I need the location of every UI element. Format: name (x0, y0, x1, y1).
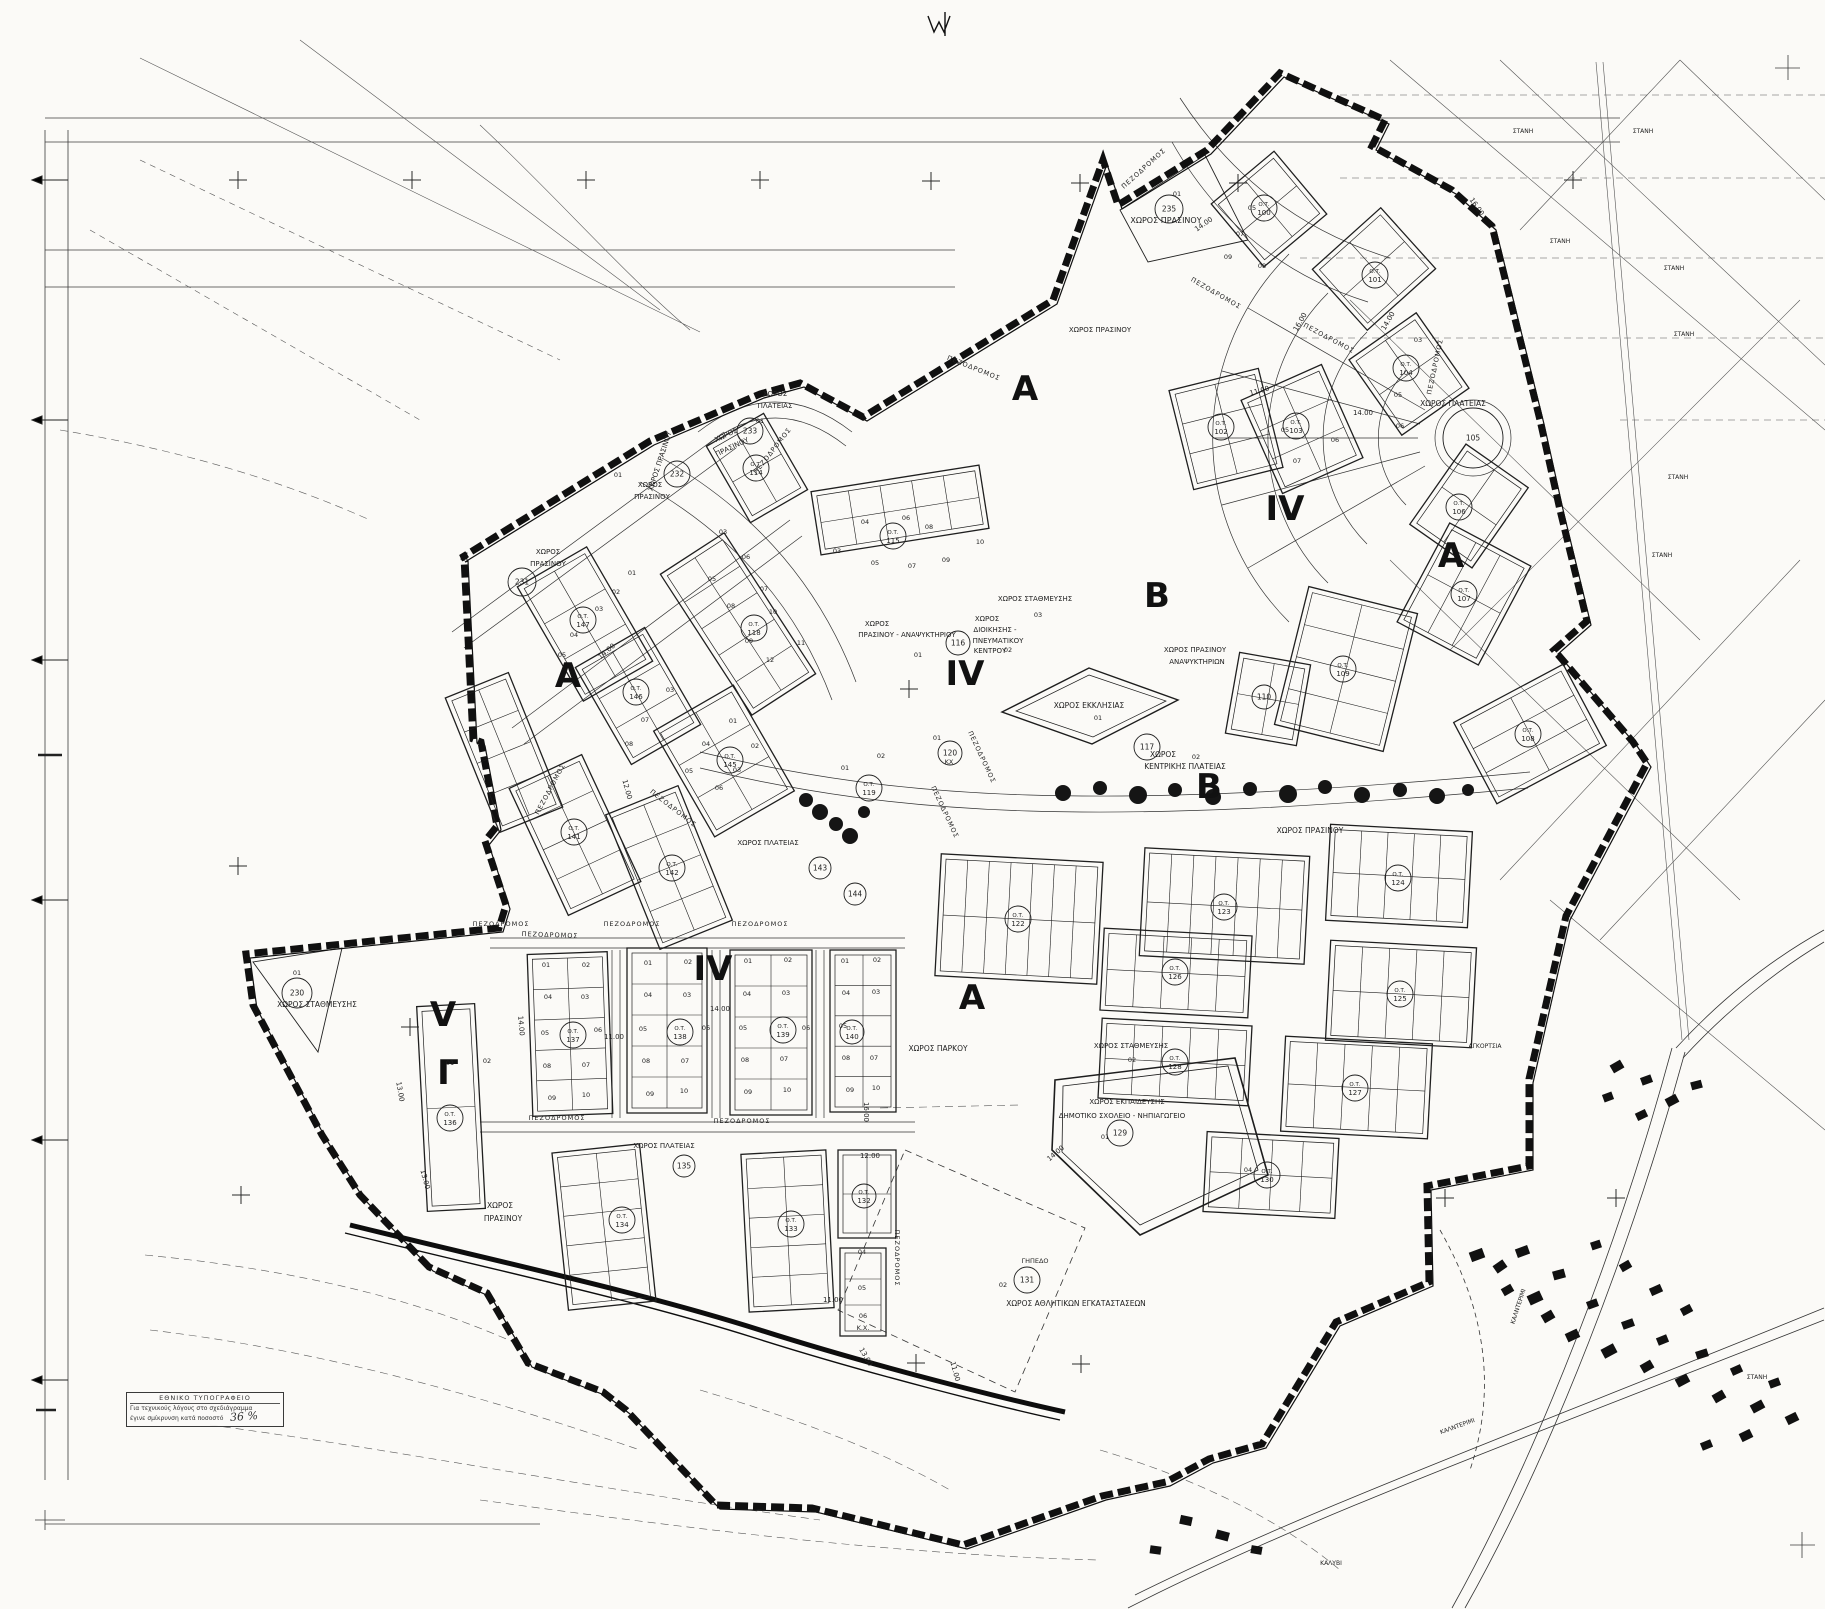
plot-number: 03 (581, 993, 589, 1001)
area-label: ΧΩΡΟΣ ΠΡΑΣΙΝΟΥ (1164, 646, 1227, 654)
plot-number: 01 (756, 417, 764, 425)
ot-prefix: Ο.Τ. (863, 782, 874, 788)
grid-cross (577, 171, 595, 189)
ot-prefix: Ο.Τ. (1369, 269, 1380, 275)
ot-number: 126 (1168, 973, 1182, 981)
area-label: ΧΩΡΟΣ ΠΡΑΣΙΝΟΥ (1277, 826, 1344, 835)
area-label: ΧΩΡΟΣ ΣΤΑΘΜΕΥΣΗΣ (1094, 1042, 1168, 1050)
area-label: ΠΡΑΣΙΝΟΥ - ΑΝΑΨΥΚΤΗΡΙΟΥ (858, 631, 956, 639)
street-label: ΠΕΖΟΔΡΟΜΟΣ (966, 730, 997, 785)
block-circle: 131 (1014, 1267, 1040, 1293)
tree-blob (812, 804, 828, 820)
zone-label: B (1144, 576, 1170, 616)
block-number: 144 (848, 890, 863, 899)
zone-label: IV (694, 949, 734, 989)
rural-label: ΣΤΑΝΗ (1513, 128, 1534, 135)
plot-number: 12 (766, 656, 774, 664)
ot-number: 119 (862, 789, 875, 797)
ot-number: 104 (1399, 369, 1413, 377)
legend-percent: 36 % (230, 1412, 258, 1422)
area-label: ΧΩΡΟΣ (975, 615, 999, 623)
area-label: ΠΡΑΣΙΝΟΥ (484, 1214, 523, 1223)
plot-number: 01 (614, 471, 622, 479)
ot-number: 133 (784, 1225, 797, 1233)
building-block (1274, 587, 1417, 752)
plot-number: 05 (839, 1022, 847, 1030)
block-number: 129 (1113, 1129, 1128, 1138)
plot-number: 04 (570, 631, 578, 639)
street-label: ΠΕΖΟΔΡΟΜΟΣ (1189, 276, 1242, 311)
ot-number: 122 (1011, 920, 1024, 928)
village-house (1730, 1364, 1743, 1376)
plot-number: 02 (1004, 646, 1012, 654)
ot-prefix: Ο.Τ. (674, 1026, 685, 1032)
ot-block-circle: Ο.Τ.109 (1330, 656, 1356, 682)
village-house (1640, 1074, 1653, 1085)
area-label: ΧΩΡΟΣ ΠΛΑΤΕΙΑΣ (737, 839, 798, 847)
ot-block-circle: Ο.Τ.115 (880, 523, 906, 549)
ot-prefix: Ο.Τ. (1522, 728, 1533, 734)
ot-number: 137 (566, 1036, 579, 1044)
village-house (1250, 1545, 1262, 1555)
rural-label: ΑΓΚΟΡΤΣΙΑ (1468, 1043, 1502, 1050)
plot-number: 08 (642, 1057, 650, 1065)
plot-number: 03 (872, 988, 880, 996)
plot-number: 03 (782, 989, 790, 997)
dimension-label: 11.00 (823, 1296, 843, 1304)
ot-number: 130 (1260, 1176, 1273, 1184)
ot-block-circle: Ο.Τ.132 (852, 1184, 876, 1208)
dimension-label: 11.00 (948, 1361, 961, 1382)
ot-number: 107 (1457, 595, 1470, 603)
ot-prefix: Ο.Τ. (1218, 901, 1229, 907)
dimension-label: 14.00 (516, 1015, 526, 1036)
plot-number: 03 (595, 605, 603, 613)
stream-band (345, 1225, 1065, 1420)
plot-number: 01 (841, 764, 849, 772)
building-block (1410, 444, 1528, 568)
village-house (1149, 1545, 1161, 1554)
area-label: ΧΩΡΟΣ ΣΤΑΘΜΕΥΣΗΣ (277, 1000, 357, 1009)
area-label: ΓΗΠΕΔΟ (1021, 1257, 1048, 1265)
village-house (1640, 1360, 1655, 1374)
building-block (1325, 940, 1476, 1048)
street-label: ΠΕΖΟΔΡΟΜΟΣ (522, 930, 579, 940)
ot-prefix: Ο.Τ. (1453, 501, 1464, 507)
plot-number: 03 (666, 686, 674, 694)
plot-number: 07 (1236, 230, 1244, 238)
tree-blob (1279, 785, 1297, 803)
block-number: 110 (1257, 693, 1272, 702)
plot-number: 11 (797, 639, 805, 647)
plot-number: 07 (760, 585, 768, 593)
village-house (1619, 1260, 1633, 1272)
grid-cross (1072, 1355, 1090, 1373)
village-house (1565, 1329, 1581, 1343)
zone-label: IV (946, 654, 986, 694)
ot-number: 128 (1168, 1063, 1181, 1071)
ot-prefix: Ο.Τ. (616, 1214, 627, 1220)
block-number: 105 (1466, 434, 1481, 443)
block-circle: 135 (673, 1155, 695, 1177)
grid-cross (229, 857, 247, 875)
ot-prefix: Ο.Τ. (785, 1218, 796, 1224)
plot-number: 06 (1396, 422, 1404, 430)
ot-prefix: Ο.Τ. (1337, 663, 1348, 669)
dimension-label: 12.00 (620, 779, 633, 800)
block-number: 232 (670, 470, 685, 479)
area-label: ΧΩΡΟΣ (763, 390, 787, 398)
street-label: ΠΕΖΟΔΡΟΜΟΣ (732, 920, 789, 928)
tree-blob (1354, 787, 1370, 803)
block-number: 120 (943, 749, 958, 758)
village-house (1501, 1284, 1515, 1296)
dimension-label: 13.00 (394, 1081, 405, 1102)
street-label: ΠΕΖΟΔΡΟΜΟΣ (473, 920, 530, 928)
plot-number: 06 (1331, 436, 1339, 444)
dimension-label: 11.00 (1249, 385, 1270, 398)
plot-number: 03 (719, 528, 727, 536)
plot-number: 08 (741, 1056, 749, 1064)
ot-prefix: Ο.Τ. (1394, 988, 1405, 994)
zone-label: A (1012, 369, 1039, 409)
block-number: 233 (743, 427, 758, 436)
block-number: 231 (515, 578, 530, 587)
tree-blob (1462, 784, 1474, 796)
plot-number: 04 (858, 1248, 866, 1256)
ot-number: 106 (1452, 508, 1466, 516)
ot-prefix: Ο.Τ. (1290, 420, 1301, 426)
ot-prefix: Ο.Τ. (1258, 202, 1269, 208)
rural-label: ΣΤΑΝΗ (1652, 552, 1673, 559)
plot-number: 10 (783, 1086, 791, 1094)
village-house (1590, 1240, 1602, 1251)
zone-label: A (959, 978, 986, 1018)
village-house (1768, 1377, 1781, 1388)
area-label: ΧΩΡΟΣ (865, 620, 889, 628)
ot-prefix: Ο.Τ. (1012, 913, 1023, 919)
building-block (445, 673, 562, 833)
plot-number: 01 (446, 1059, 454, 1067)
plot-number: 08 (543, 1062, 551, 1070)
ot-block-circle: Ο.Τ.134 (609, 1207, 635, 1233)
ot-prefix: Ο.Τ. (568, 826, 579, 832)
plot-number: 04 (743, 990, 751, 998)
plot-number: 01 (1173, 190, 1181, 198)
plot-number: 02 (1192, 753, 1200, 761)
plot-number: 05 (685, 767, 693, 775)
ot-prefix: Ο.Τ. (1400, 362, 1411, 368)
street-label: ΠΕΖΟΔΡΟΜΟΣ (752, 426, 793, 476)
street-label: ΠΕΖΟΔΡΟΜΟΣ (1302, 321, 1356, 355)
plot-number: 03 (733, 766, 741, 774)
plot-number: 04 (1244, 1166, 1252, 1174)
plot-number: 06 (902, 514, 910, 522)
plot-number: 03 (833, 547, 841, 555)
village-house (1665, 1094, 1680, 1108)
reduction-note-box: ΕΘΝΙΚΟ ΤΥΠΟΓΡΑΦΕΙΟ Για τεχνικούς λόγους … (126, 1392, 284, 1427)
tree-blob (799, 793, 813, 807)
ot-prefix: Ο.Τ. (777, 1024, 788, 1030)
building-block (811, 465, 989, 555)
plot-number: ΚΧ (945, 758, 954, 766)
ot-prefix: Ο.Τ. (666, 862, 677, 868)
village-house (1621, 1318, 1635, 1330)
ot-number: 123 (1217, 908, 1230, 916)
plot-number: 04 (702, 740, 710, 748)
rural-label: ΣΤΑΝΗ (1668, 474, 1689, 481)
village-house (1656, 1334, 1669, 1346)
street-label: ΠΕΖΟΔΡΟΜΟΣ (893, 1230, 901, 1287)
dimension-label: 13.00 (857, 1346, 874, 1367)
dimension-label: 12.00 (860, 1152, 880, 1160)
village-house (1493, 1259, 1508, 1273)
village-house (1602, 1092, 1614, 1103)
plot-number: 07 (870, 1054, 878, 1062)
plot-number: 09 (646, 1090, 654, 1098)
plot-number: 06 (802, 1024, 810, 1032)
plot-number: 07 (582, 1061, 590, 1069)
area-label: ΠΡΑΣΙΝΟΥ (634, 493, 671, 501)
plot-number: 09 (548, 1094, 556, 1102)
ot-block-circle: Ο.Τ.136 (437, 1105, 463, 1131)
plot-number: 02 (784, 956, 792, 964)
street-label: ΠΕΖΟΔΡΟΜΟΣ (1425, 338, 1445, 395)
ot-block-circle: Ο.Τ.142 (659, 855, 685, 881)
building-block (840, 1248, 886, 1336)
ot-prefix: Ο.Τ. (1215, 421, 1226, 427)
ot-prefix: Ο.Τ. (1169, 966, 1180, 972)
area-label: ΚΕΝΤΡΙΚΗΣ ΠΛΑΤΕΙΑΣ (1144, 762, 1226, 771)
plot-number: 06 (859, 1312, 867, 1320)
village-house (1515, 1245, 1530, 1258)
ot-number: 115 (886, 537, 899, 545)
town-plan-map-page: 235Ο.Τ.100Ο.Τ.101Ο.Τ.102Ο.Τ.103Ο.Τ.10410… (0, 0, 1825, 1609)
edge-tick-marks (32, 176, 68, 1410)
ot-prefix: Ο.Τ. (858, 1190, 869, 1196)
dimension-label: 13.00 (418, 1169, 431, 1190)
ot-number: 147 (576, 621, 589, 629)
plot-number: 08 (727, 602, 735, 610)
village-house (1635, 1109, 1648, 1121)
plot-number: 05 (858, 1284, 866, 1292)
area-label: ΧΩΡΟΣ (1150, 750, 1176, 759)
sheet-frame (35, 55, 1815, 1558)
ot-block-circle: Ο.Τ.139 (770, 1017, 796, 1043)
ot-number: 136 (443, 1119, 457, 1127)
building-block (1098, 1018, 1252, 1106)
area-label: ΔΗΜΟΤΙΚΟ ΣΧΟΛΕΙΟ - ΝΗΠΙΑΓΩΓΕΙΟ (1059, 1112, 1186, 1120)
tree-blob (1055, 785, 1071, 801)
plot-number: Κ.Χ. (857, 1324, 870, 1332)
ot-block-circle: Ο.Τ.137 (560, 1022, 586, 1048)
tree-blob (1243, 782, 1257, 796)
area-label: ΧΩΡΟΣ (638, 481, 662, 489)
plot-number: 01 (1094, 714, 1102, 722)
block-number: 131 (1020, 1276, 1035, 1285)
street-label: ΠΕΖΟΔΡΟΜΟΣ (929, 785, 960, 840)
plot-number: 05 (871, 559, 879, 567)
plot-number: 07 (641, 716, 649, 724)
block-number: 143 (813, 864, 828, 873)
plot-number: 03 (683, 991, 691, 999)
ot-block-circle: Ο.Τ.102 (1208, 414, 1234, 440)
ot-number: 134 (615, 1221, 629, 1229)
grid-cross (1071, 174, 1089, 192)
ot-number: 125 (1393, 995, 1406, 1003)
ot-number: 138 (673, 1033, 686, 1041)
plot-number: 02 (873, 956, 881, 964)
ot-prefix: Ο.Τ. (577, 614, 588, 620)
plot-number: 08 (1258, 262, 1266, 270)
ot-prefix: Ο.Τ. (444, 1112, 455, 1118)
plot-number: 09 (744, 1088, 752, 1096)
ot-block-circle: Ο.Τ.119 (856, 775, 882, 801)
village-house (1712, 1390, 1727, 1404)
ot-number: 102 (1214, 428, 1227, 436)
area-label: ΠΛΑΤΕΙΑΣ (758, 402, 793, 410)
rural-lines-topleft (90, 40, 700, 420)
zone-label: A (555, 656, 582, 696)
village-house (1785, 1412, 1800, 1425)
plot-number: 02 (877, 752, 885, 760)
plot-number: 10 (872, 1084, 880, 1092)
plot-number: 04 (544, 993, 552, 1001)
village-house (1675, 1373, 1691, 1387)
ot-prefix: Ο.Τ. (887, 530, 898, 536)
grid-cross (751, 171, 769, 189)
dimension-label: 14.00 (710, 1005, 730, 1013)
village-house (1600, 1343, 1617, 1358)
block-circle: 232 (664, 461, 690, 487)
plot-number: 05 (1281, 426, 1289, 434)
plot-number: 05 (708, 575, 716, 583)
plot-number: 01 (1101, 1133, 1109, 1141)
ot-block-circle: Ο.Τ.123 (1211, 894, 1237, 920)
village-roads (1128, 930, 1824, 1608)
legend-line3: έγινε σμίκρυνση κατά ποσοστό (130, 1415, 223, 1422)
grid-cross (1436, 1189, 1454, 1207)
plot-number: 01 (914, 651, 922, 659)
plot-number: 01 (644, 959, 652, 967)
area-label: ΔΙΟΙΚΗΣΗΣ - (973, 626, 1017, 634)
area-label: ΧΩΡΟΣ ΑΘΛΗΤΙΚΩΝ ΕΓΚΑΤΑΣΤΑΣΕΩΝ (1006, 1299, 1146, 1308)
dimension-label: 14.00 (1353, 409, 1373, 417)
plot-number: 04 (842, 989, 850, 997)
plot-number: 08 (625, 740, 633, 748)
grid-cross (1564, 171, 1582, 189)
ot-block-circle: Ο.Τ.124 (1385, 865, 1411, 891)
sports-field-outline (838, 1150, 1085, 1392)
zone-label: A (1438, 536, 1465, 576)
plot-number: 09 (1224, 253, 1232, 261)
grid-cross (401, 1018, 419, 1036)
village-house (1690, 1080, 1703, 1091)
rural-label: ΚΑΛΝΤΕΡΙΜΙ (1510, 1288, 1528, 1325)
ot-number: 141 (567, 833, 580, 841)
street-label: ΠΕΖΟΔΡΟΜΟΣ (533, 762, 567, 816)
plot-number: 02 (483, 1057, 491, 1065)
grid-cross (1607, 1189, 1625, 1207)
zone-label: V (430, 995, 457, 1035)
plot-number: 08 (842, 1054, 850, 1062)
plot-number: 05 (1394, 391, 1402, 399)
ot-number: 118 (747, 629, 760, 637)
rural-parcel-lines (1300, 60, 1825, 1130)
plot-number: 06 (594, 1026, 602, 1034)
area-label: ΧΩΡΟΣ ΣΤΑΘΜΕΥΣΗΣ (998, 595, 1072, 603)
ot-number: 140 (845, 1033, 858, 1041)
plot-number: 10 (976, 538, 984, 546)
map-canvas: 235Ο.Τ.100Ο.Τ.101Ο.Τ.102Ο.Τ.103Ο.Τ.10410… (0, 0, 1825, 1609)
grid-cross (907, 1354, 925, 1372)
area-label: ΚΕΝΤΡΟΥ (974, 647, 1007, 655)
ot-number: 103 (1289, 427, 1302, 435)
block-number: 135 (677, 1162, 692, 1171)
tree-blob (1318, 780, 1332, 794)
block-number: 235 (1162, 205, 1177, 214)
ot-prefix: Ο.Τ. (1392, 872, 1403, 878)
rural-label: ΣΤΑΝΗ (1747, 1374, 1768, 1381)
plot-number: 10 (680, 1087, 688, 1095)
street-label: ΠΕΖΟΔΡΟΜΟΣ (604, 920, 661, 928)
rural-label: ΚΑΛΥΒΙ (1320, 1560, 1342, 1567)
plot-number: 03 (1414, 336, 1422, 344)
survey-grid-crosses-layer (229, 171, 1625, 1373)
grid-cross (403, 171, 421, 189)
area-label: ΧΩΡΟΣ ΠΑΡΚΟΥ (908, 1044, 968, 1053)
plot-number: 07 (908, 562, 916, 570)
village-house (1541, 1310, 1556, 1324)
block-circle: 144 (844, 883, 866, 905)
plot-number: 02 (612, 588, 620, 596)
plot-number: 04 (644, 991, 652, 999)
street-label: ΠΕΖΟΔΡΟΜΟΣ (946, 354, 1002, 383)
village-house (1215, 1529, 1230, 1541)
area-label: ΧΩΡΟΣ (487, 1201, 513, 1210)
area-label: ΧΩΡΟΣ ΠΛΑΤΕΙΑΣ (633, 1142, 694, 1150)
plot-number: 02 (751, 742, 759, 750)
village-house (1680, 1304, 1693, 1316)
plot-number: 01 (628, 569, 636, 577)
plot-number: 01 (729, 717, 737, 725)
ot-number: 139 (776, 1031, 789, 1039)
plot-number: 01 (542, 961, 550, 969)
ot-block-circle: Ο.Τ.126 (1162, 959, 1188, 985)
plot-number: 07 (681, 1057, 689, 1065)
area-label: ΧΩΡΟΣ (536, 548, 560, 556)
block-circle: 105 (1443, 408, 1503, 468)
area-label: ΧΩΡΟΣ ΕΚΚΛΗΣΙΑΣ (1054, 701, 1125, 710)
grid-cross (922, 172, 940, 190)
area-label: ΠΡΑΣΙΝΟΥ (530, 560, 567, 568)
tree-blob (858, 806, 870, 818)
plot-number: 09 (745, 637, 753, 645)
ot-prefix: Ο.Τ. (724, 754, 735, 760)
ot-number: 108 (1521, 735, 1534, 743)
area-label: ΧΩΡΟΣ ΠΡΑΣΙΝΟΥ (1069, 326, 1132, 334)
block-circle: 143 (809, 857, 831, 879)
plot-number: 09 (846, 1086, 854, 1094)
area-label: ΠΝΕΥΜΑΤΙΚΟΥ (973, 637, 1024, 645)
plot-number: 07 (780, 1055, 788, 1063)
ot-number: 100 (1257, 209, 1270, 217)
plot-number: 05 (541, 1029, 549, 1037)
building-block (660, 533, 815, 715)
village-house (1649, 1284, 1663, 1296)
plot-number: 10 (582, 1091, 590, 1099)
tree-blob (1129, 786, 1147, 804)
